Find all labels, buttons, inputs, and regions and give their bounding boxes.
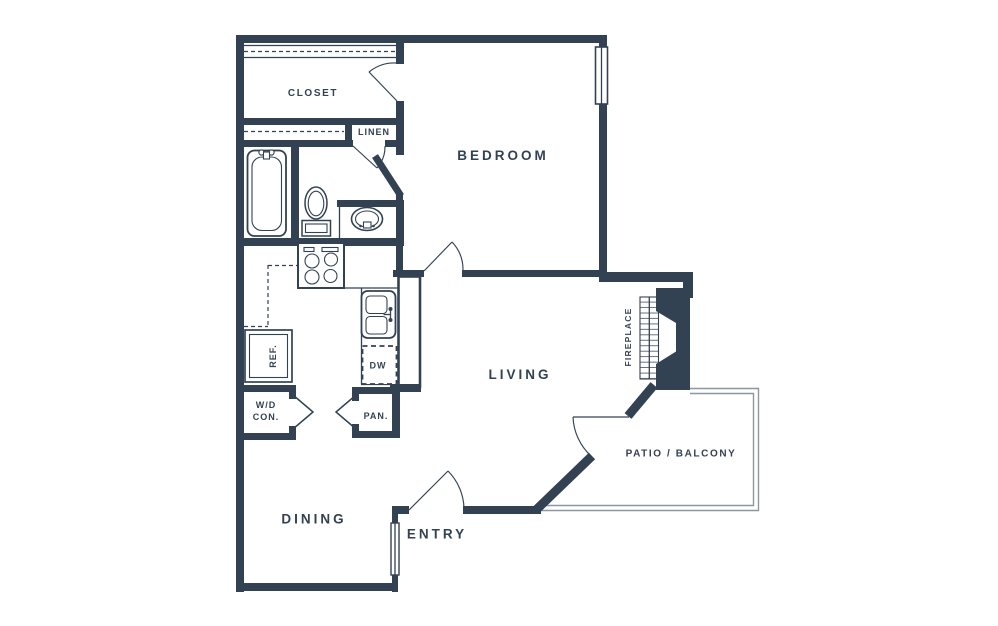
wall-diagonal-fireplace (628, 385, 654, 416)
wall-linen-right (396, 118, 404, 155)
pantry-label: PAN. (364, 411, 389, 421)
entry-label: ENTRY (407, 527, 467, 542)
wall-hall-east (396, 194, 403, 272)
wall-entry-south (463, 506, 541, 514)
wall-pantry-left-stub-top (352, 387, 359, 401)
bedroom-door (424, 242, 463, 271)
wd-label-line2: CON. (253, 412, 280, 422)
kitchen-sink-icon (362, 291, 396, 338)
wall-bar-top (393, 270, 424, 277)
wall-pantry-top (352, 387, 400, 394)
closet-door (369, 63, 397, 101)
wall-pantry-bottom (352, 431, 400, 438)
wall-closet-east-upper (396, 43, 404, 64)
wall-tub-divider (291, 147, 299, 240)
wall-entry-left-lower (392, 573, 398, 592)
wall-bedroom-bottom (462, 270, 607, 277)
dining-label: DINING (281, 512, 346, 527)
bathtub-icon (248, 150, 287, 236)
wall-top (236, 35, 607, 43)
dishwasher-label: DW (370, 361, 387, 371)
entry-door (409, 471, 464, 510)
bedroom-label: BEDROOM (457, 148, 549, 163)
wall-bath-north-left (236, 140, 353, 147)
patio-balcony-label: PATIO / BALCONY (626, 449, 737, 460)
living-label: LIVING (488, 367, 551, 382)
wall-diagonal-entry (536, 456, 592, 510)
wall-living-north (599, 272, 693, 282)
wall-closet-bottom (236, 118, 403, 125)
wall-vanity-niche (337, 200, 403, 207)
toilet-icon (302, 187, 331, 236)
refrigerator-label: REF. (268, 344, 278, 368)
fireplace-label: FIREPLACE (623, 308, 633, 367)
wall-dining-bottom (236, 583, 398, 591)
patio-door (573, 417, 629, 456)
bath-sink-icon (340, 207, 383, 239)
bath-door (353, 146, 385, 168)
wall-wd-top (236, 385, 296, 392)
wd-label-line1: W/D (256, 400, 277, 410)
wall-wd-bottom (236, 433, 296, 440)
wall-hall-diagonal (375, 156, 401, 196)
floor-plan: CLOSET LINEN BEDROOM LIVING DINING ENTRY… (0, 0, 998, 626)
linen-label: LINEN (358, 127, 390, 137)
wall-linen-left (345, 118, 352, 147)
wd-bifold-door (293, 395, 313, 429)
closet-label: CLOSET (288, 88, 338, 99)
wall-pantry-right (392, 387, 400, 438)
wall-closet-east-lower (396, 101, 404, 118)
kitchen-bar (399, 277, 421, 388)
fireplace-structure (640, 288, 690, 390)
floor-plan-canvas: CLOSET LINEN BEDROOM LIVING DINING ENTRY… (0, 0, 998, 626)
stove-icon (298, 243, 344, 288)
wall-entry-south-stub (392, 506, 409, 514)
